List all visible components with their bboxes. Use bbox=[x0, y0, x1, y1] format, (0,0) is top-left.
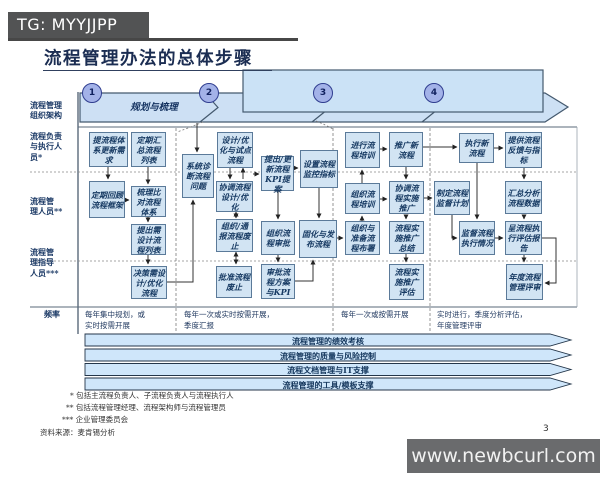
page-title: 流程管理办法的总体步骤 bbox=[44, 45, 253, 70]
support-bar-label-doc-it: 流程文档管理与IT支撑 bbox=[85, 365, 571, 376]
flow-box-b30: 年度流程管理评审 bbox=[506, 264, 543, 300]
footnote-1: * 包括主流程负责人、子流程负责人与流程执行人 bbox=[70, 390, 234, 401]
flow-box-b1: 提流程体系更新需求 bbox=[89, 132, 128, 167]
step-circle-2: 2 bbox=[199, 83, 219, 103]
source-note: 资料来源：麦肯锡分析 bbox=[40, 427, 115, 438]
frequency-phase-3: 每年一次或按需开展 bbox=[341, 310, 409, 321]
flow-box-b24: 执行新流程 bbox=[459, 133, 494, 163]
flow-box-b12: 提出/更新流程KPI提案 bbox=[261, 156, 294, 191]
flow-box-b3: 定期回顾流程框架 bbox=[89, 181, 125, 218]
flow-box-b13: 组织流程审批 bbox=[261, 221, 295, 255]
footnote-2: ** 包括流程管理经理、流程架构师与流程管理员 bbox=[66, 402, 226, 413]
flow-box-b4: 梳理比对流程体系 bbox=[131, 186, 166, 217]
support-bar-label-tools-templates: 流程管理的工具/模板支撑 bbox=[85, 380, 571, 391]
frequency-phase-4: 实时进行，季度分析评估， 年度管理评审 bbox=[437, 310, 527, 332]
channel-badge: TG: MYYJJPP bbox=[8, 12, 149, 38]
flow-box-b27: 汇总分析流程数据 bbox=[505, 181, 542, 214]
flow-box-b2: 定期汇总流程列表 bbox=[131, 132, 166, 167]
flow-box-b25: 提供流程反馈与指标 bbox=[505, 132, 542, 168]
title-underline bbox=[43, 70, 272, 71]
flow-box-b6: 决策需设计/优化流程 bbox=[131, 266, 167, 299]
flow-box-b14: 审批流程方案与KPI bbox=[261, 264, 295, 299]
badge-underline-strip bbox=[8, 38, 298, 41]
flow-box-b18: 推广新流程 bbox=[389, 132, 423, 167]
flow-box-b15: 设置流程监控指标 bbox=[300, 150, 338, 188]
slide: TG: MYYJJPP 流程管理办法的总体步骤 1 2 3 4 规划与梳理 流程… bbox=[0, 0, 600, 480]
flow-box-b11: 批准流程废止 bbox=[216, 266, 252, 298]
page-number: 3 bbox=[543, 424, 549, 434]
row-label-process-managers: 流程管 理人员** bbox=[30, 196, 62, 217]
flow-box-b9: 协调流程设计/优化 bbox=[216, 181, 253, 212]
frequency-phase-2: 每年一次或实时按需开展， 季度汇报 bbox=[184, 310, 274, 332]
step-circle-3: 3 bbox=[313, 83, 333, 103]
flow-box-b29: 呈流程执行评估报告 bbox=[505, 221, 542, 255]
flow-box-b26: 制定流程监督计划 bbox=[434, 181, 470, 215]
flow-box-b8: 设计/优化与试点流程 bbox=[217, 132, 253, 168]
flow-box-b17: 进行流程培训 bbox=[345, 132, 380, 168]
flow-box-b19: 组织流程培训 bbox=[345, 183, 380, 214]
step-circle-4: 4 bbox=[424, 83, 444, 103]
flow-box-b28: 监督流程执行情况 bbox=[459, 221, 495, 255]
support-bar-label-quality-risk: 流程管理的质量与风险控制 bbox=[85, 351, 571, 362]
flow-box-b16: 固化与发布流程 bbox=[299, 220, 337, 258]
row-label-steering-staff: 流程管 理指导 人员*** bbox=[30, 247, 59, 278]
row-label-process-owners: 流程负责 与执行人 员* bbox=[30, 131, 62, 162]
frequency-phase-1: 每年集中规划，或 实时按需开展 bbox=[85, 310, 145, 332]
row-label-org-structure: 流程管理 组织架构 bbox=[30, 100, 62, 121]
flow-box-b7: 系统诊断流程问题 bbox=[182, 154, 214, 198]
band-overlay-rect bbox=[243, 70, 543, 112]
footnote-3: *** 企业管理委员会 bbox=[62, 414, 128, 425]
flow-box-b23: 流程实施推广评估 bbox=[389, 264, 424, 300]
flow-box-b10: 组织/通报流程废止 bbox=[216, 219, 253, 252]
flow-box-b22: 流程实施推广总结 bbox=[389, 221, 424, 254]
row-label-frequency: 频率 bbox=[44, 309, 60, 319]
flow-box-b5: 提出需设计流程列表 bbox=[131, 224, 166, 255]
flow-box-b21: 组织与准备流程布署 bbox=[345, 221, 380, 255]
step-circle-1: 1 bbox=[82, 83, 102, 103]
flow-box-b20: 协调流程实施推广 bbox=[389, 181, 424, 214]
watermark-banner: www.newbcurl.com bbox=[407, 439, 600, 473]
band-step1-label: 规划与梳理 bbox=[112, 99, 196, 113]
support-bar-label-performance: 流程管理的绩效考核 bbox=[85, 336, 571, 347]
